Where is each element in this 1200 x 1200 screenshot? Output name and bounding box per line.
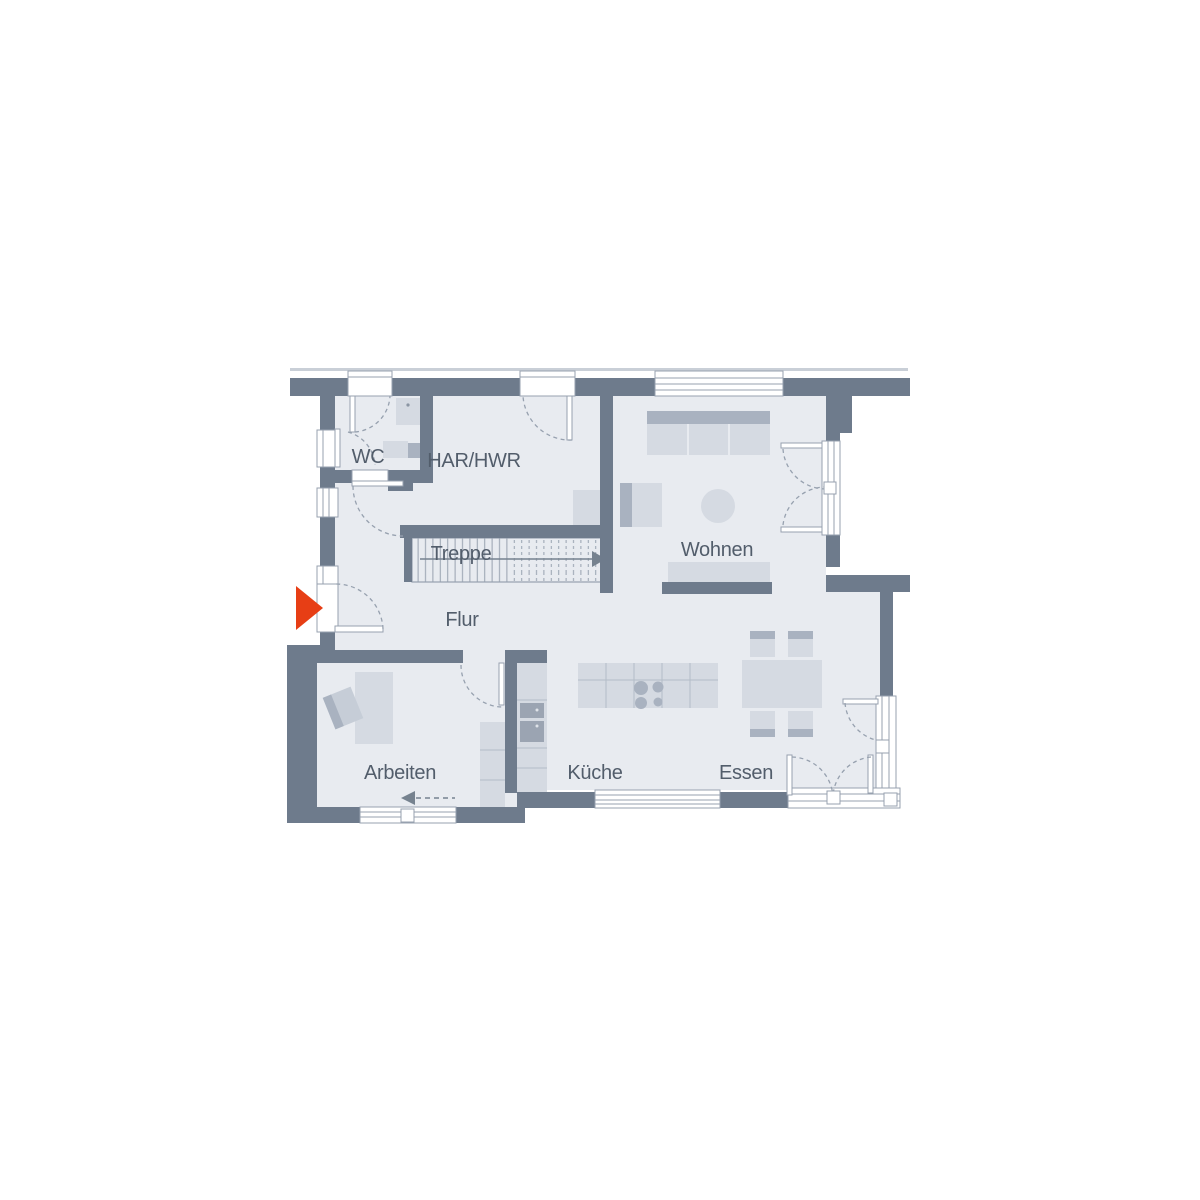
cooktop-burner [653,682,664,693]
dining-chair-back [750,729,775,737]
wc-side-door-leaf [335,429,340,467]
kitchen-window [595,790,720,808]
dining-chair-back [750,631,775,639]
wall-stair-right [600,396,613,593]
dining-chair-back [788,631,813,639]
room-label-treppe: Treppe [431,543,492,565]
wohnen-french-door-leaf [781,527,822,532]
wall-left-lower [287,663,317,823]
essen-right-door-handle [876,740,889,753]
har-door-leaf [567,396,572,440]
wc-toilet-tank [408,443,420,458]
sideboard [668,562,770,582]
coffee-table [701,489,735,523]
essen-bottom-door-handle [827,791,840,804]
wc-toilet [383,441,408,458]
room-label-arbeiten: Arbeiten [364,762,436,784]
microwave-knob [536,709,539,712]
armchair-back [620,483,632,527]
essen-bottom-door-leaf [787,755,792,795]
room-label-flur: Flur [445,609,479,631]
wall-wohnen-right-lower [826,533,840,567]
wall-kitchen-top [505,650,547,663]
wc-sink [396,398,420,425]
har-door [520,371,575,396]
wall-wohnen-right-upper [826,396,840,443]
left-wall-window-mid [317,488,338,517]
stair-treads-dashed [509,538,603,582]
sofa-seat [647,424,770,455]
wall-terrace-stub [840,396,852,433]
cooktop-burner [654,698,663,707]
har-appliance [573,490,601,528]
cooktop-burner [635,697,647,709]
kitchen-island [578,663,718,708]
wall-stair-stub [404,538,412,582]
dining-table [742,660,822,708]
essen-bottom-door-frame [788,788,900,808]
desk [355,672,393,744]
microwave [520,703,544,718]
wall-essen-right [880,592,893,698]
wc-sink-drain [406,403,409,406]
room-label-essen: Essen [719,762,773,784]
entrance-door-leaf [335,626,383,632]
wohnen-french-door-handle [824,482,836,494]
arbeiten-window-handle [401,809,414,822]
room-label-wohnen: Wohnen [681,539,753,561]
room-label-kueche: Küche [567,762,622,784]
room-label-wc: WC [352,446,385,468]
arbeiten-door-leaf [499,663,504,705]
room-label-har: HAR/HWR [427,450,520,472]
wall-arbeiten-top [317,650,463,663]
dining-chair-back [788,729,813,737]
essen-bottom-door-leaf [868,755,873,793]
wall-stair-top [400,525,600,538]
wall-kitchen [505,663,517,793]
wc-exterior-door [348,371,392,396]
floor-plan-svg: WC HAR/HWR Treppe Wohnen Flur Arbeiten K… [0,0,1200,1200]
oven-knob [536,725,539,728]
essen-right-door-leaf [843,699,878,704]
entrance-sidelight [317,566,338,584]
wc-door-leaf [352,481,403,486]
floor-plan-page: WC HAR/HWR Treppe Wohnen Flur Arbeiten K… [0,0,1200,1200]
wc-exterior-door-leaf [350,396,355,432]
oven [520,721,544,742]
armchair-seat [632,483,662,527]
arbeiten-cabinet [480,722,505,808]
wall-wohnen-essen-divider [662,582,772,594]
wohnen-french-door-leaf [781,443,822,448]
wall-essen-top [826,575,910,592]
cooktop-burner [634,681,648,695]
corner-post-handle [884,793,897,806]
sofa-back [647,411,770,424]
